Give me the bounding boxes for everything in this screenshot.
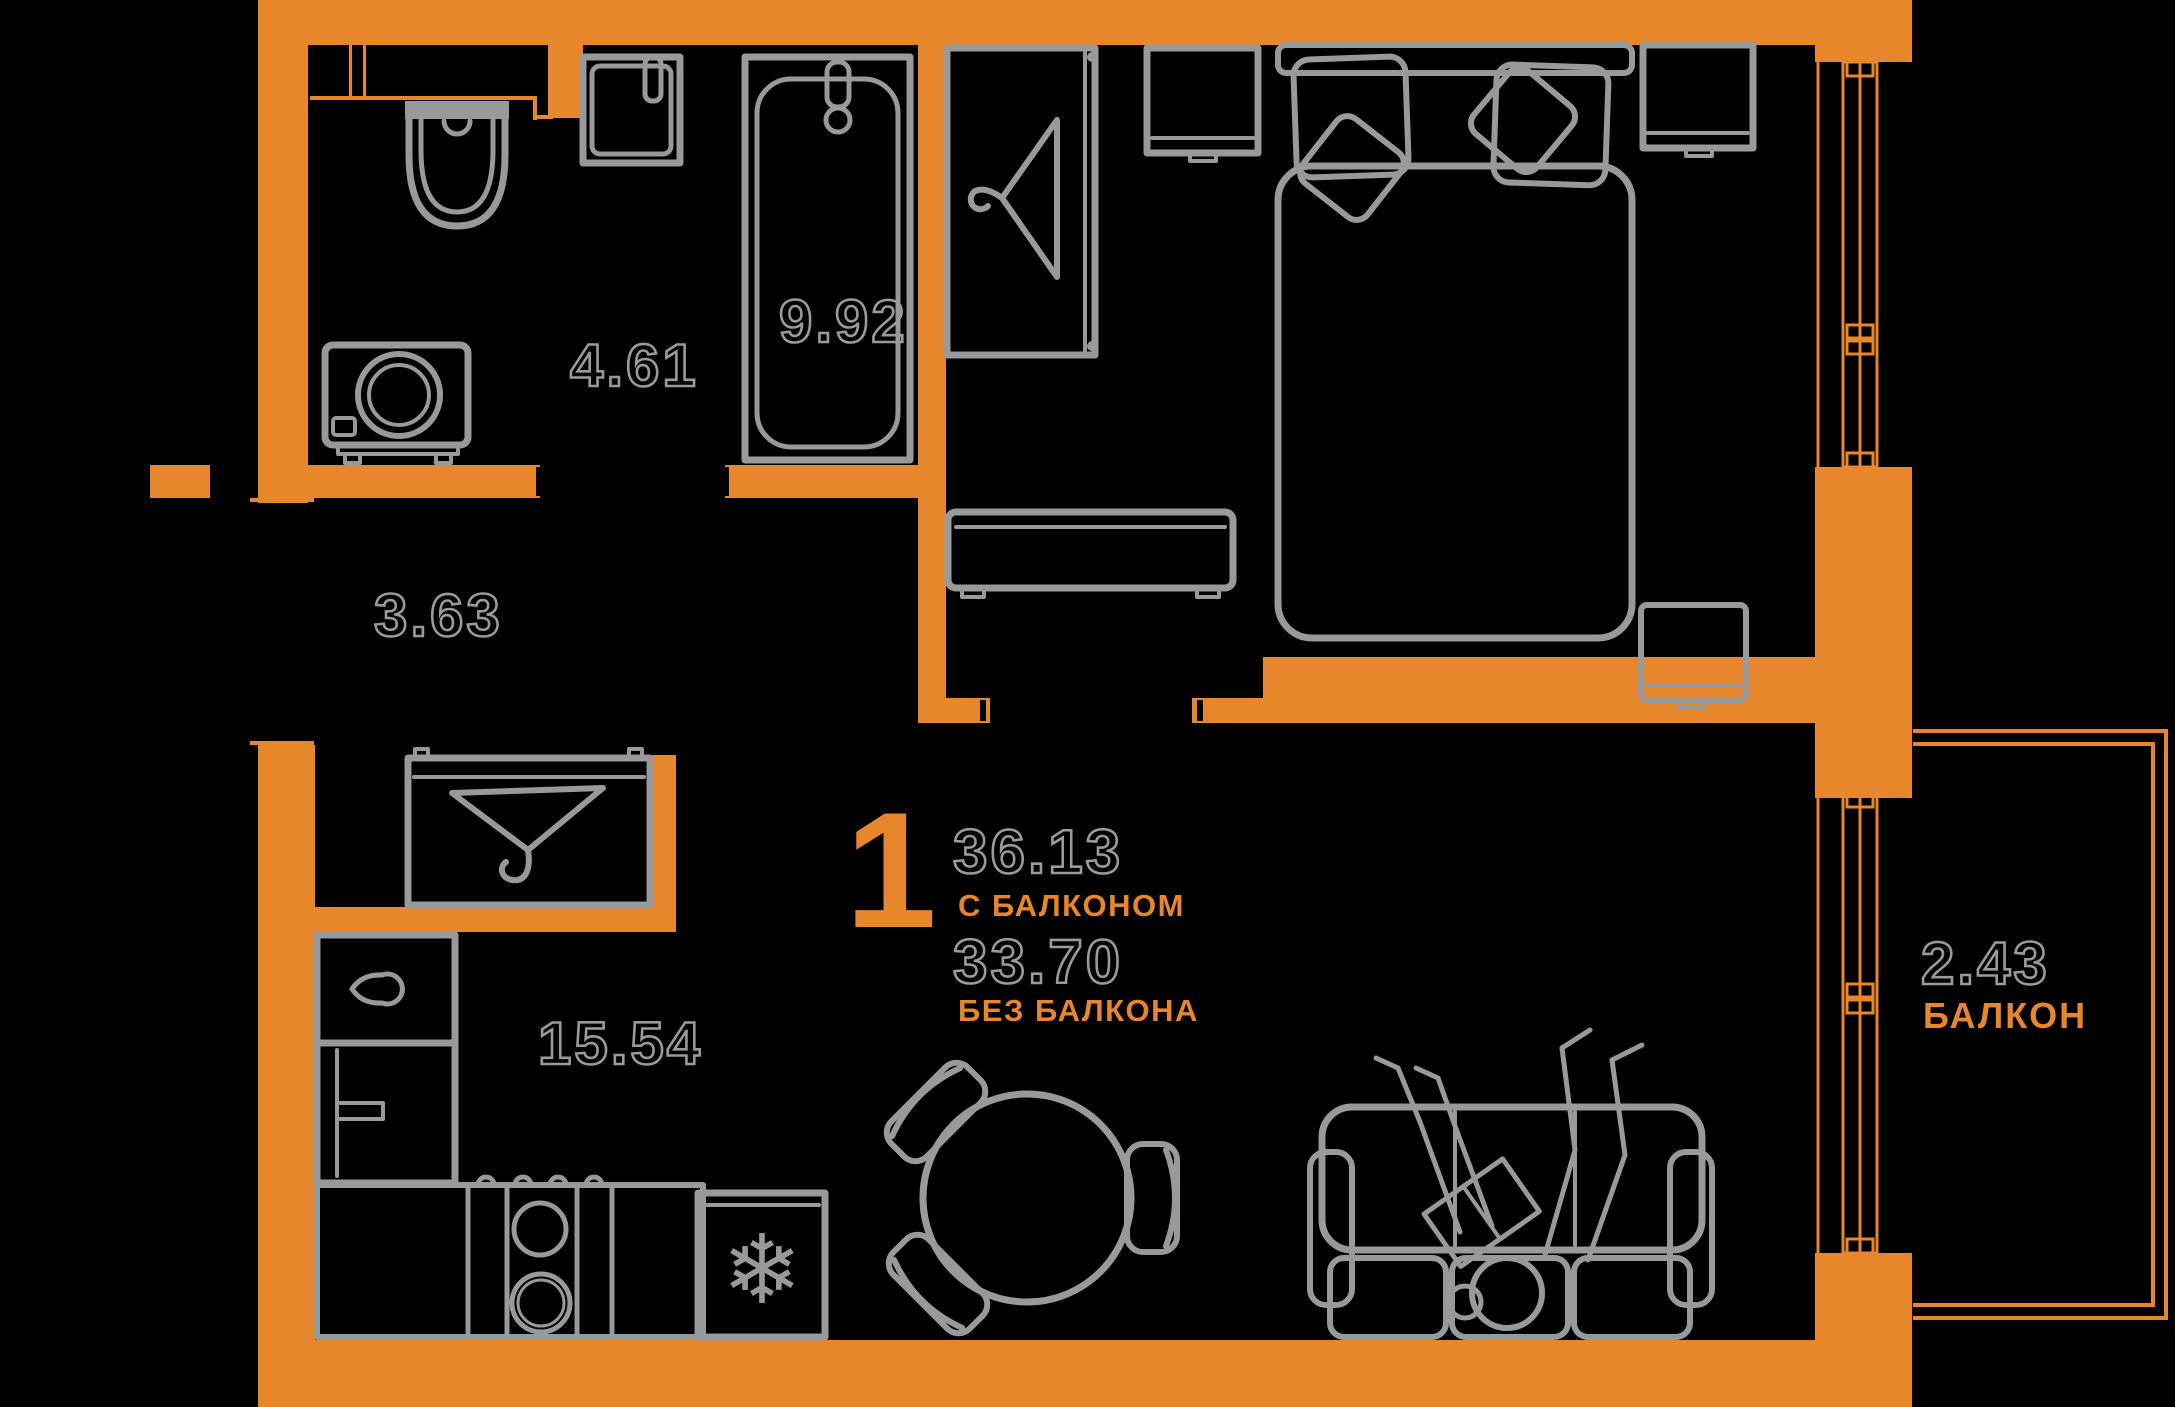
floor-plan: ❄ bbox=[0, 0, 2175, 1407]
wall-entry-stub bbox=[150, 465, 210, 498]
wall-bath-south-left bbox=[308, 465, 540, 498]
rooms-count: 1 bbox=[845, 788, 937, 953]
hall-closet bbox=[408, 749, 650, 905]
without-balcony-label: БЕЗ БАЛКОНА bbox=[958, 995, 1199, 1026]
pillow-small bbox=[1465, 62, 1581, 178]
entrance-door bbox=[250, 498, 314, 745]
wall-right-bottom bbox=[1815, 1253, 1912, 1407]
wall-bottom bbox=[258, 1340, 1912, 1407]
room-area-balcony: 2.43 bbox=[1921, 934, 2050, 994]
bed bbox=[1278, 45, 1632, 638]
sofa bbox=[1310, 1107, 1712, 1337]
wall-bedliving-right bbox=[1263, 657, 1815, 723]
wall-hall-kitchen bbox=[308, 907, 676, 932]
room-area-bedroom: 9.92 bbox=[779, 292, 908, 352]
walls bbox=[150, 0, 1912, 1407]
chair bbox=[880, 1056, 992, 1168]
washing-machine bbox=[325, 345, 468, 463]
wall-right-top bbox=[1815, 0, 1912, 62]
balcony-label: БАЛКОН bbox=[1923, 998, 2087, 1034]
coat-hanger-icon bbox=[452, 788, 603, 880]
stove bbox=[478, 1177, 602, 1332]
with-balcony-label: С БАЛКОНОМ bbox=[958, 890, 1185, 921]
toilet bbox=[405, 101, 509, 226]
snowflake-icon: ❄ bbox=[722, 1214, 802, 1326]
freezer: ❄ bbox=[698, 1193, 825, 1337]
kitchen-sink-cabinet bbox=[317, 935, 455, 1043]
wall-hall-stub bbox=[652, 755, 676, 907]
wall-bedliving-left bbox=[918, 698, 990, 723]
wall-top bbox=[258, 0, 1912, 45]
area-without-balcony: 33.70 bbox=[953, 932, 1123, 994]
wall-bath-south-right bbox=[725, 465, 946, 498]
wall-left-lower bbox=[258, 745, 315, 1407]
tv-stand bbox=[948, 512, 1233, 597]
room-area-kitchen-living: 15.54 bbox=[538, 1014, 703, 1074]
nightstand-right bbox=[1643, 45, 1753, 156]
bathroom-sink bbox=[583, 57, 680, 163]
kitchen-counter bbox=[317, 1177, 703, 1337]
fridge bbox=[317, 1043, 455, 1183]
bedroom-window bbox=[1818, 62, 1877, 467]
wall-shaft-pillar bbox=[548, 0, 583, 118]
wall-left-upper bbox=[258, 0, 308, 503]
wardrobe bbox=[947, 48, 1097, 355]
room-area-hallway: 3.63 bbox=[374, 586, 503, 646]
chair bbox=[882, 1228, 994, 1340]
area-with-balcony: 36.13 bbox=[953, 822, 1123, 884]
room-area-bathroom: 4.61 bbox=[570, 336, 699, 396]
person-reading bbox=[1376, 1030, 1642, 1328]
nightstand-left bbox=[1147, 48, 1258, 161]
door-jambs bbox=[536, 467, 1203, 721]
balcony-door bbox=[1818, 793, 1877, 1253]
wall-right-mid bbox=[1815, 467, 1912, 798]
floor-plan-drawing: ❄ bbox=[0, 0, 2175, 1407]
coat-hanger-icon bbox=[971, 120, 1057, 277]
wall-bedroom-west bbox=[918, 45, 946, 723]
bathtub bbox=[745, 57, 910, 460]
